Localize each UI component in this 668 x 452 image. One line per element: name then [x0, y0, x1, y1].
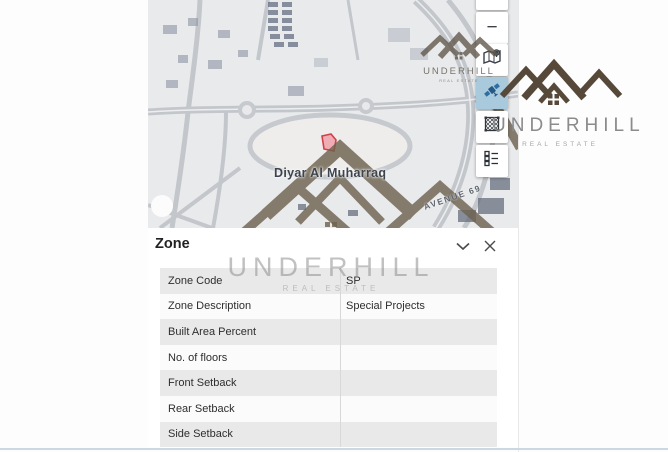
close-icon: [484, 240, 496, 255]
row-value: [340, 422, 497, 448]
zone-info-panel: Zone Zone Code SP: [148, 228, 518, 449]
row-value: [340, 345, 497, 371]
zoom-out-button[interactable]: −: [476, 12, 508, 44]
table-row: Side Setback: [160, 422, 497, 448]
satellite-button[interactable]: [476, 77, 508, 109]
app-column: Diyar Al Muharraq AVENUE 69 + −: [148, 0, 519, 452]
app-screenshot: Diyar Al Muharraq AVENUE 69 + −: [0, 0, 668, 452]
close-button[interactable]: [482, 238, 498, 254]
row-label: Zone Description: [160, 300, 340, 312]
row-label: Rear Setback: [160, 403, 340, 415]
table-row: Rear Setback: [160, 396, 497, 422]
row-label: Built Area Percent: [160, 326, 340, 338]
basemap-button[interactable]: [476, 44, 508, 76]
hatch-square-icon: [482, 114, 502, 140]
table-row: No. of floors: [160, 345, 497, 371]
row-value: SP: [340, 268, 497, 294]
table-row: Front Setback: [160, 370, 497, 396]
layers-list-icon: [482, 148, 502, 174]
row-value: [340, 396, 497, 422]
table-row: Built Area Percent: [160, 319, 497, 345]
minus-icon: −: [486, 17, 497, 39]
map-roundabout: [151, 195, 173, 217]
table-row: Zone Description Special Projects: [160, 294, 497, 320]
place-label: Diyar Al Muharraq: [274, 166, 386, 180]
row-label: Zone Code: [160, 275, 340, 287]
panel-title: Zone: [155, 236, 190, 252]
parcel-select-button[interactable]: [476, 111, 508, 143]
table-row: Zone Code SP: [160, 268, 497, 294]
collapse-button[interactable]: [454, 240, 472, 253]
row-value: [340, 370, 497, 396]
zoom-in-button[interactable]: +: [476, 0, 508, 10]
plus-icon: +: [486, 0, 497, 5]
map-pin-icon: [482, 47, 502, 73]
row-label: No. of floors: [160, 352, 340, 364]
row-value: [340, 319, 497, 345]
page-bottom-edge: [0, 448, 668, 450]
zone-attributes-table: Zone Code SP Zone Description Special Pr…: [160, 268, 497, 447]
row-value: Special Projects: [340, 294, 497, 320]
map-canvas[interactable]: Diyar Al Muharraq AVENUE 69 + −: [148, 0, 518, 228]
satellite-icon: [482, 80, 502, 106]
legend-button[interactable]: [476, 145, 508, 177]
chevron-down-icon: [456, 239, 470, 254]
row-label: Front Setback: [160, 377, 340, 389]
row-label: Side Setback: [160, 428, 340, 440]
parcel-marker[interactable]: [322, 134, 336, 151]
